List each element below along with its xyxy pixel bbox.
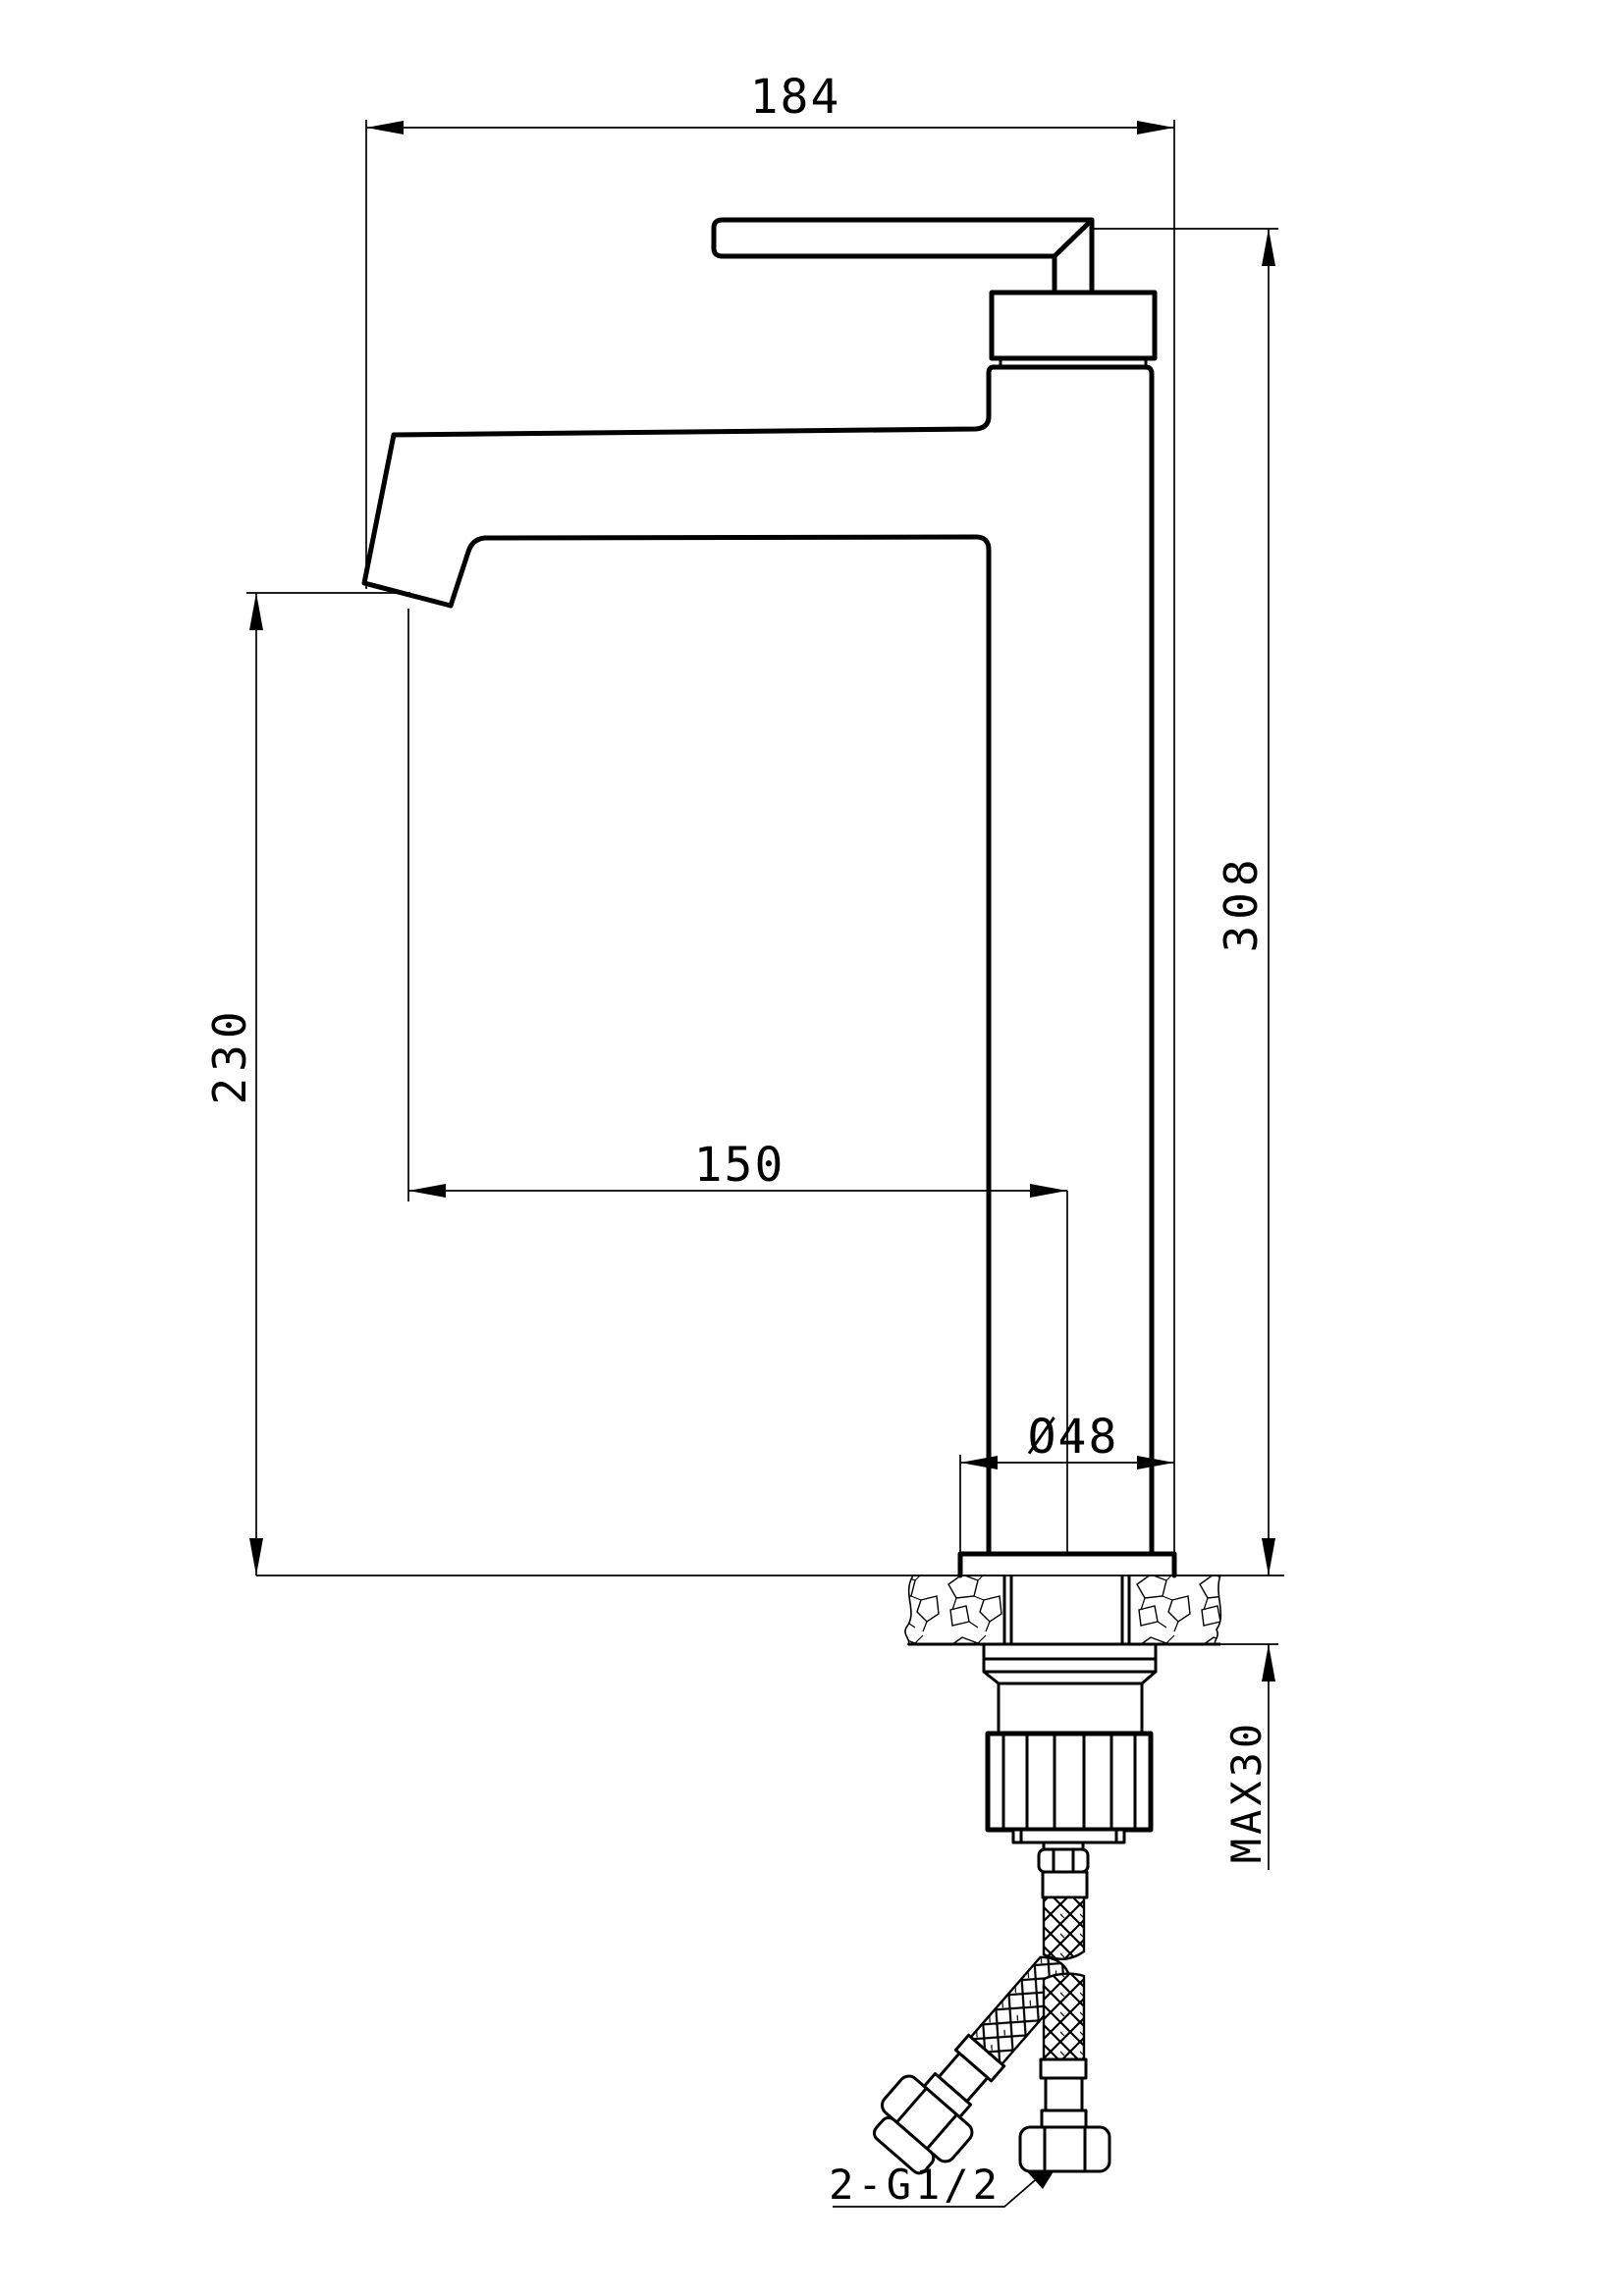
arrowhead-150-left [408,1184,446,1198]
drawing-page: 184 308 230 150 Ø48 MAX30 2-G1/2 [0,0,1623,2296]
handle-lever [714,220,1092,256]
fixing-hardware [984,1644,1156,1897]
dim-label-d48: Ø48 [1028,1410,1119,1465]
shank-adapter [999,1683,1142,1734]
body-right-edge [994,367,1152,1554]
dim-label-184: 184 [750,70,841,125]
hose-hex-upper [1039,1849,1088,1872]
hose-crimp-sleeve [1043,1872,1087,1897]
dim-label-max30: MAX30 [1222,1720,1271,1863]
arrowhead-230-top [249,593,263,630]
deck-hatch-left [905,1575,1004,1644]
arrowhead-184-right [1137,121,1174,134]
dimension-labels: 184 308 230 150 Ø48 MAX30 2-G1/2 [203,70,1271,2209]
arrowhead-max30 [1262,1644,1275,1682]
arrowhead-d48-right [1137,1456,1174,1469]
dim-label-308: 308 [1215,853,1268,952]
hose-vertical-hex-nut [1020,2127,1109,2171]
hose-vertical-braid-lower [1044,1974,1084,2059]
faucet-outline [364,220,1174,1575]
faucet-technical-drawing: 184 308 230 150 Ø48 MAX30 2-G1/2 [0,0,1623,2296]
dim-label-230: 230 [203,1005,256,1104]
hose-vertical-collar [1042,2110,1086,2127]
dim-label-g12: 2-G1/2 [829,2161,1001,2209]
arrowhead-230-bottom [249,1538,263,1575]
hose-vertical-tube [1046,2078,1082,2110]
arrowhead-d48-left [960,1456,998,1469]
handle-cap [992,293,1155,358]
base-flange [960,1554,1174,1575]
arrowhead-184-left [366,121,404,134]
deck-hatch-right [1129,1575,1220,1644]
hose-vertical-ferrule [1041,2059,1086,2078]
arrowhead-308-top [1262,229,1275,266]
washer-chamfer [984,1672,1156,1683]
arrowhead-308-bottom [1262,1538,1275,1575]
body-left-edge-and-spout [364,367,994,1554]
dim-label-150: 150 [694,1138,785,1193]
nut-lower-collar [1013,1830,1124,1842]
hoses [861,1897,1109,2185]
hose-vertical-braid-upper [1044,1897,1084,1959]
handle-lever-end [1055,220,1092,293]
hose-vertical [1020,1897,1109,2171]
arrowhead-150-right [1030,1184,1067,1198]
mounting-nut [988,1734,1151,1830]
mounting-deck [256,1575,1284,1644]
